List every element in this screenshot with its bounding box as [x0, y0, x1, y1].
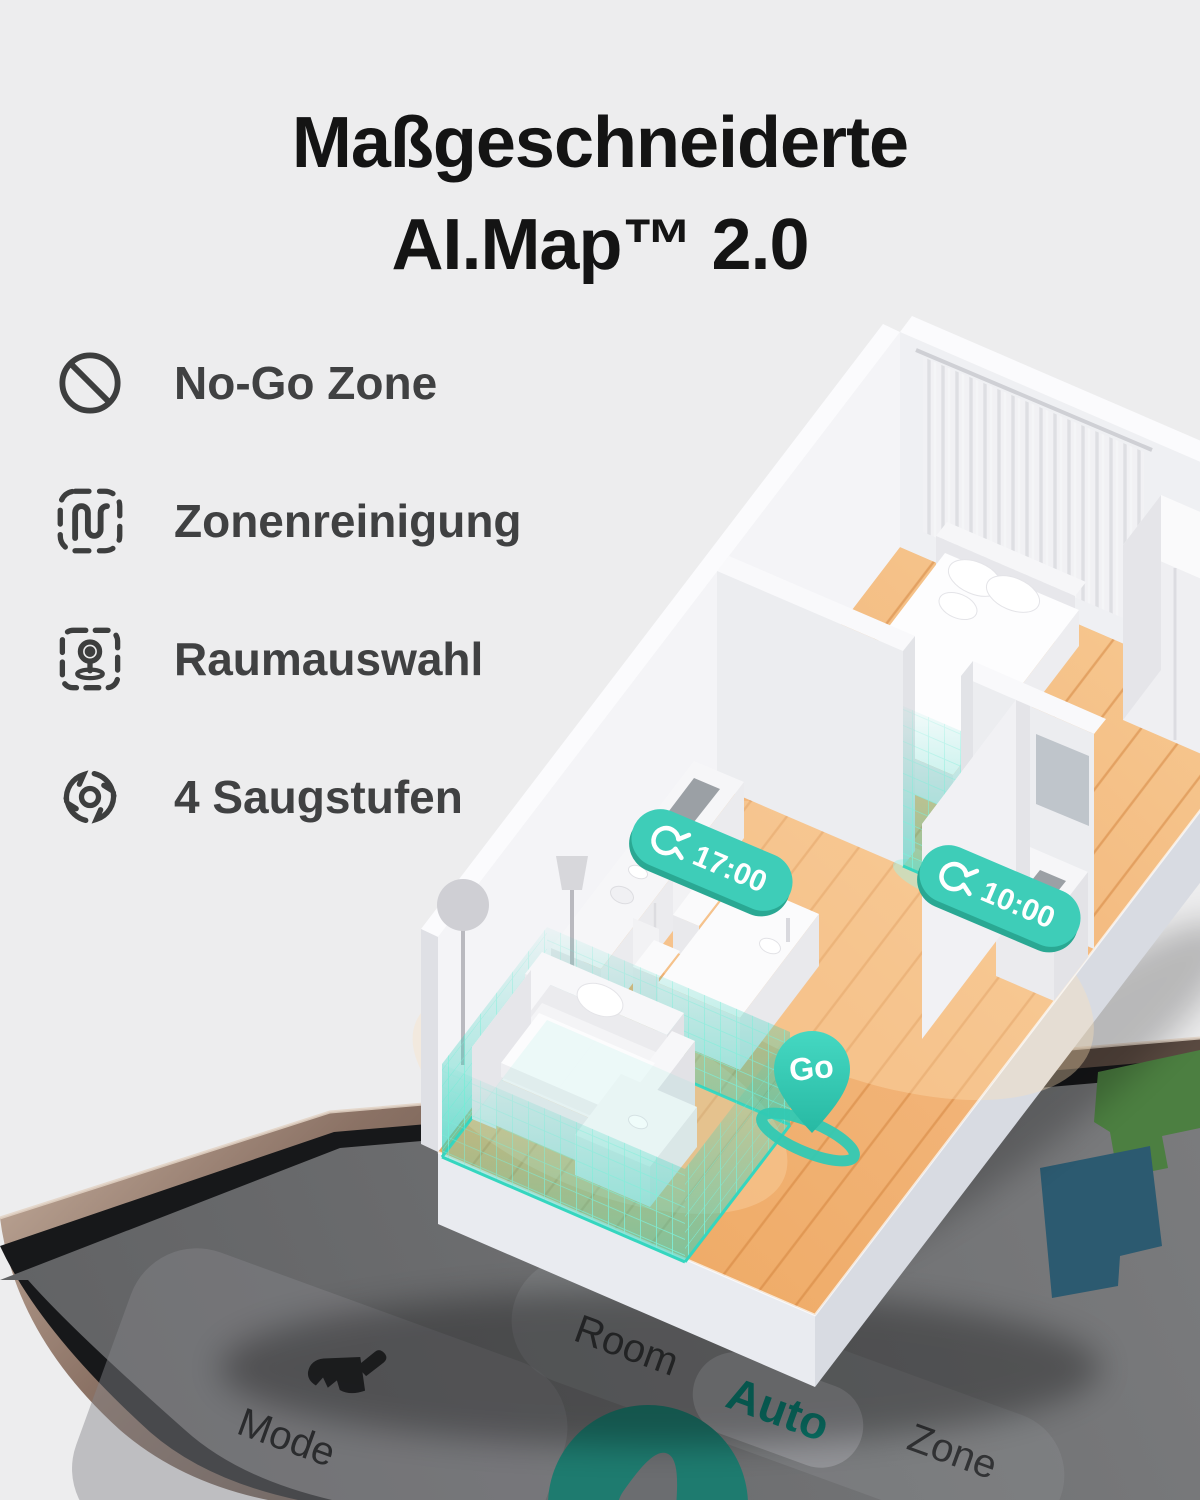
title-line-1: Maßgeschneiderte	[0, 92, 1200, 194]
title-line-2: AI.Map™ 2.0	[0, 194, 1200, 296]
feature-list: No-Go Zone Zonenreinigung Raumauswahl 4 …	[56, 348, 522, 900]
feature-label: Zonenreinigung	[174, 494, 522, 548]
promo-canvas: Mode Room Auto Zone	[0, 0, 1200, 1500]
feature-label: No-Go Zone	[174, 356, 437, 410]
no-go-zone-icon	[56, 349, 124, 417]
page-title: Maßgeschneiderte AI.Map™ 2.0	[0, 92, 1200, 296]
feature-no-go-zone: No-Go Zone	[56, 348, 522, 418]
feature-zone-cleaning: Zonenreinigung	[56, 486, 522, 556]
feature-label: 4 Saugstufen	[174, 770, 463, 824]
suction-levels-icon	[56, 763, 124, 831]
feature-label: Raumauswahl	[174, 632, 483, 686]
feature-suction-levels: 4 Saugstufen	[56, 762, 522, 832]
room-selection-icon	[56, 625, 124, 693]
zone-cleaning-icon	[56, 487, 124, 555]
go-pin-label: Go	[787, 1048, 835, 1088]
feature-room-selection: Raumauswahl	[56, 624, 522, 694]
wardrobe	[1123, 495, 1200, 765]
